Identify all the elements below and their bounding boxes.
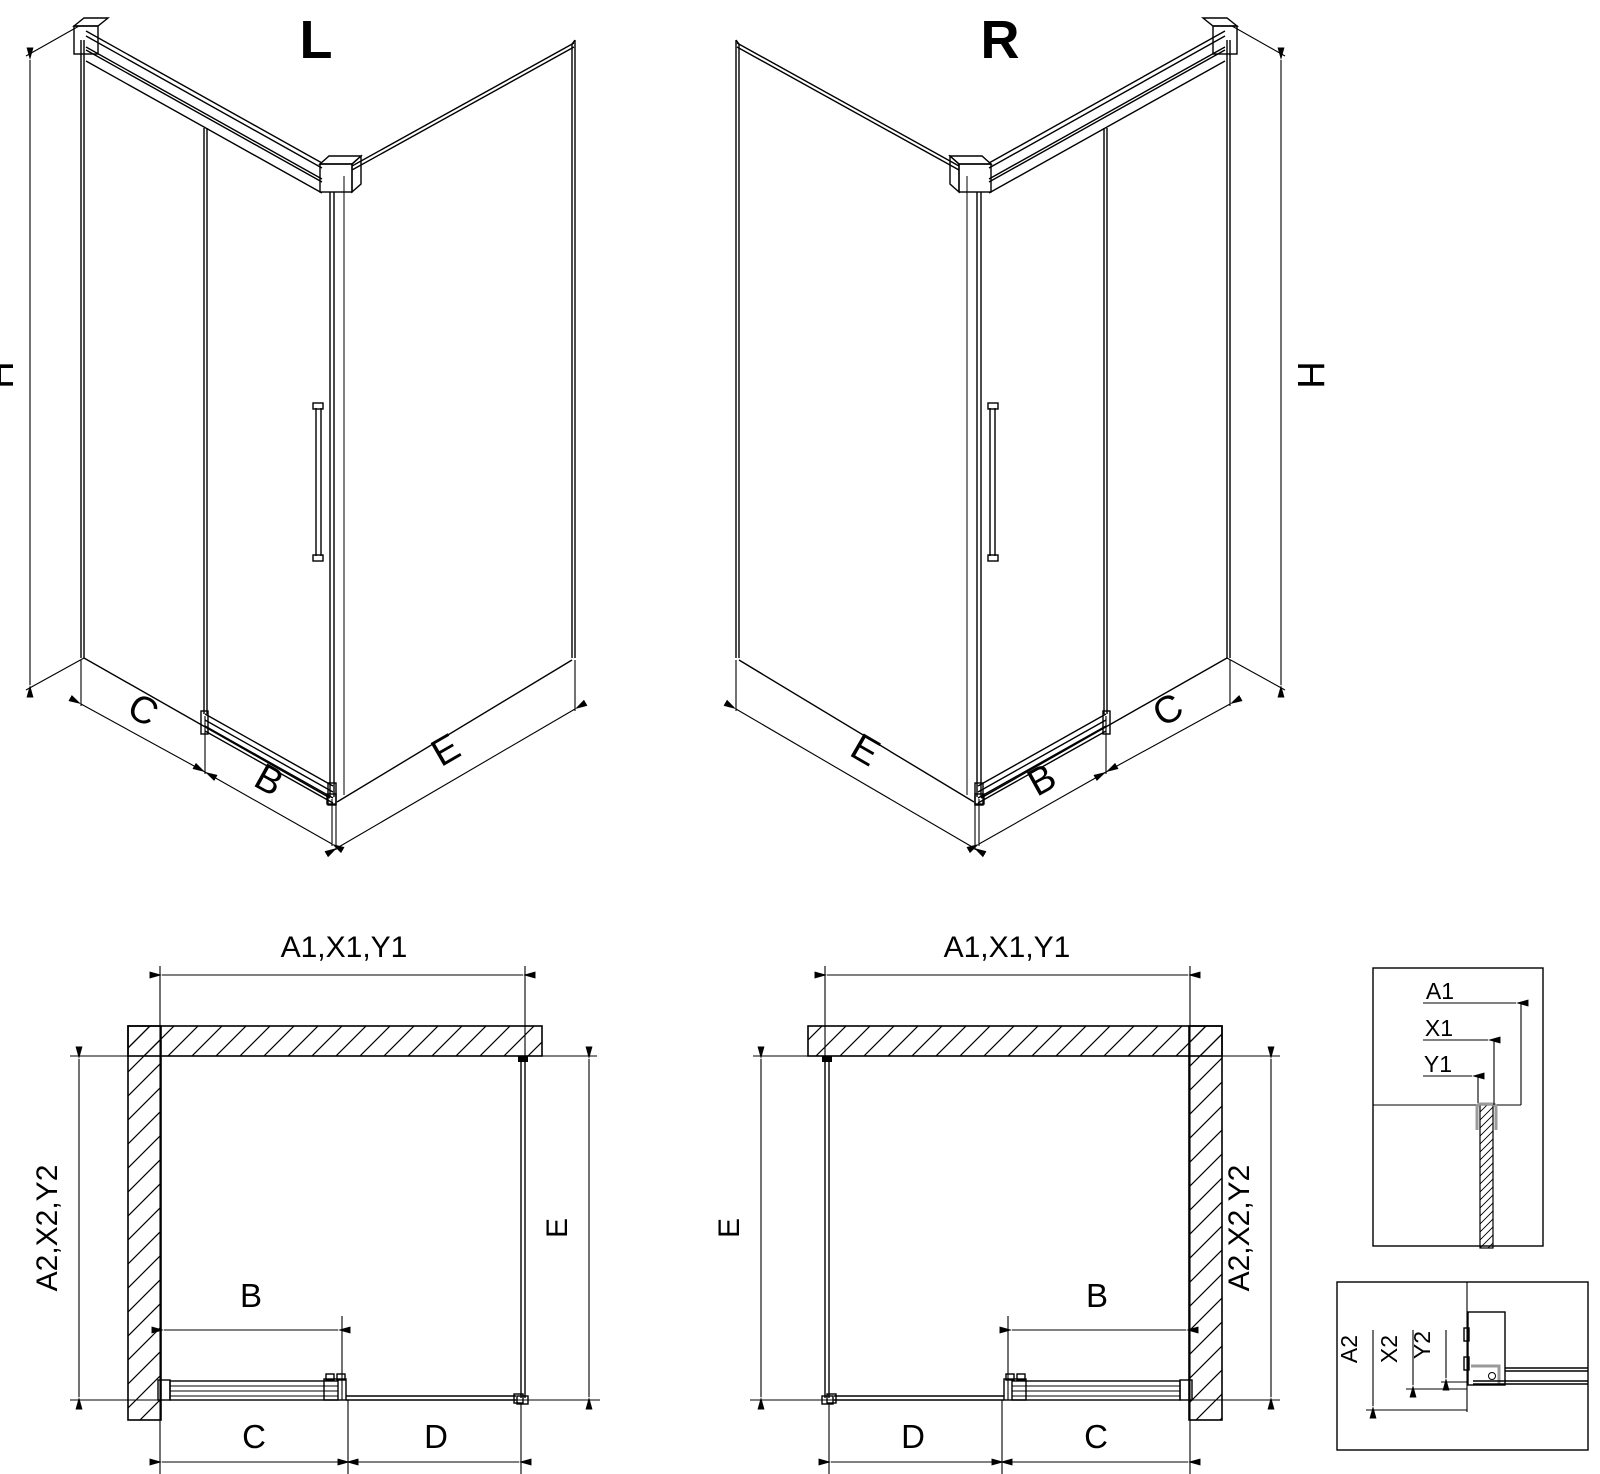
plan-view-right: A1,X1,Y1 A2,X2,Y2 E B — [713, 931, 1280, 1474]
glass-section — [1480, 1105, 1493, 1248]
detail-top-view: A1 X1 Y1 — [1373, 968, 1543, 1248]
plan-depth-label-left: A2,X2,Y2 — [31, 1165, 64, 1292]
side-wall-right-plan — [1189, 1026, 1222, 1420]
shower-enclosure-diagram: L H C B E R H E B C A1,X1,Y1 A2,X2,Y2 E — [0, 0, 1600, 1474]
side-glass-right-plan — [822, 1056, 833, 1404]
iso-view-right: R H E B C — [736, 10, 1331, 850]
side-glass-left-plan — [517, 1056, 528, 1404]
plan-bottom-first-label-left: C — [242, 1418, 266, 1455]
plan-width-label-left: A1,X1,Y1 — [281, 931, 408, 964]
side-panel-dim-label-left: E — [425, 726, 468, 775]
plan-door-label-right: B — [1086, 1277, 1108, 1314]
side-wall-left-plan — [128, 1026, 161, 1420]
roller-bracket — [324, 1379, 346, 1400]
height-dim-label-right: H — [1289, 361, 1331, 388]
door-dim-label-left: B — [248, 756, 291, 805]
plan-door-label-left: B — [240, 1277, 262, 1314]
roller-wheel — [1489, 1373, 1496, 1380]
plan-view-left: A1,X1,Y1 A2,X2,Y2 E B — [31, 931, 600, 1474]
roller-bracket — [1004, 1379, 1026, 1400]
iso-view-left: L H C B E — [0, 10, 575, 850]
door-track-right-plan — [1004, 1374, 1192, 1400]
detail-top-label-y1: Y1 — [1424, 1051, 1452, 1077]
plan-depth-label-right: A2,X2,Y2 — [1223, 1165, 1256, 1292]
plan-side-label-right: E — [713, 1218, 746, 1238]
top-wall-right-plan — [808, 1026, 1222, 1056]
door-dim-label-right: B — [1021, 756, 1064, 805]
detail-bottom-label-x2: X2 — [1376, 1335, 1402, 1363]
iso-title-right: R — [981, 10, 1020, 70]
door-glass-right-plan — [827, 1394, 1004, 1403]
side-panel-dim-label-right: E — [844, 726, 887, 775]
detail-bottom-view: A2 X2 Y2 — [1336, 1282, 1588, 1450]
fixed-panel-dim-label-left: C — [121, 685, 165, 735]
top-wall-left-plan — [128, 1026, 542, 1056]
door-glass-left-plan — [346, 1394, 523, 1403]
iso-title-left: L — [300, 10, 333, 70]
fixed-panel-dim-label-right: C — [1146, 685, 1190, 735]
plan-bottom-second-label-left: D — [424, 1418, 448, 1455]
technical-drawing-page: L H C B E R H E B C A1,X1,Y1 A2,X2,Y2 E — [0, 0, 1600, 1474]
detail-bottom-label-y2: Y2 — [1409, 1331, 1435, 1359]
detail-top-label-a1: A1 — [1426, 978, 1454, 1004]
plan-side-label-left: E — [541, 1218, 574, 1238]
door-track-left-plan — [158, 1374, 346, 1400]
plan-width-label-right: A1,X1,Y1 — [944, 931, 1071, 964]
detail-bottom-label-a2: A2 — [1336, 1335, 1362, 1363]
height-dim-label-left: H — [0, 361, 22, 388]
detail-top-label-x1: X1 — [1425, 1015, 1453, 1041]
plan-bottom-first-label-right: D — [901, 1418, 925, 1455]
plan-bottom-second-label-right: C — [1084, 1418, 1108, 1455]
